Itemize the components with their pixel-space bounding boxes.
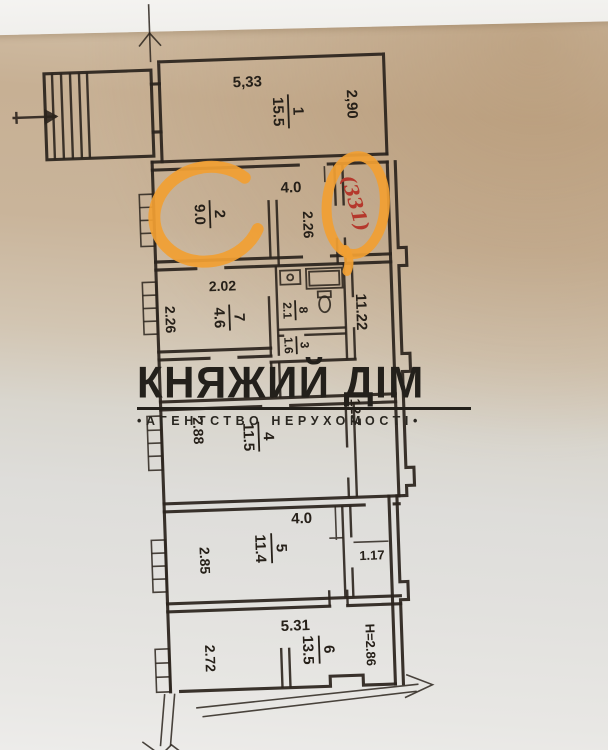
svg-text:4: 4: [260, 432, 277, 442]
room-label-7: 7 4.6: [210, 304, 248, 331]
toilet-icon: [318, 291, 332, 312]
dim-corridor-length: 11.22: [352, 293, 370, 330]
dim-hall-width: 4.0: [280, 179, 301, 197]
svg-text:7: 7: [230, 313, 247, 322]
dim-room1-width: 5,33: [232, 73, 262, 91]
svg-text:1.6: 1.6: [281, 337, 296, 354]
svg-text:1: 1: [289, 107, 306, 116]
ceiling-height-note: Н=2.86: [362, 623, 378, 666]
bathtub-icon: [306, 268, 343, 289]
dim-room7-side: 2.26: [162, 306, 179, 334]
continuation-arrow: [195, 674, 433, 717]
watermark: КНЯЖИЙ ДІМ •АГЕНТСТВО НЕРУХОМОСТІ•: [137, 357, 477, 428]
wall-break-symbol: [141, 693, 188, 750]
dim-passage-width: 1.17: [359, 547, 385, 563]
room-label-6: 6 13.5: [299, 634, 338, 665]
dim-room5-side: 2.85: [197, 547, 214, 575]
dim-room1-side: 2,90: [343, 89, 361, 119]
dim-room6-side: 2.72: [202, 645, 219, 673]
svg-text:5: 5: [272, 543, 289, 552]
room-label-8: 8 2.1: [280, 300, 311, 321]
watermark-title: КНЯЖИЙ ДІМ: [137, 357, 477, 408]
dim-hall-side: 2.26: [300, 211, 317, 239]
watermark-subtitle: •АГЕНТСТВО НЕРУХОМОСТІ•: [137, 414, 477, 428]
room-label-5: 5 11.4: [251, 533, 290, 564]
room-label-1: 1 15.5: [269, 94, 307, 129]
sink-icon: [280, 270, 300, 285]
svg-text:9.0: 9.0: [191, 204, 209, 225]
svg-text:2.1: 2.1: [280, 302, 295, 319]
svg-text:13.5: 13.5: [299, 635, 317, 665]
dim-room5-width: 4.0: [291, 510, 312, 528]
svg-text:15.5: 15.5: [269, 97, 287, 127]
handwritten-unit-number: (331): [336, 173, 373, 234]
room-label-2: 2 9.0: [190, 200, 228, 229]
staircase: [11, 70, 154, 161]
stair-direction-arrow: [12, 108, 59, 126]
dim-room6-width: 5.31: [280, 617, 310, 635]
svg-text:6: 6: [320, 645, 337, 654]
dim-room7-width: 2.02: [209, 277, 237, 294]
svg-text:8: 8: [296, 306, 310, 313]
photographed-floor-plan-page: { "watermark": { "title": "КНЯЖИЙ ДІМ", …: [0, 0, 608, 750]
svg-text:11.4: 11.4: [251, 534, 269, 564]
svg-text:3: 3: [297, 341, 311, 348]
svg-text:4.6: 4.6: [210, 307, 228, 328]
room-label-3: 3 1.6: [281, 336, 312, 355]
svg-text:2: 2: [211, 209, 228, 218]
axis-line: [138, 4, 162, 63]
